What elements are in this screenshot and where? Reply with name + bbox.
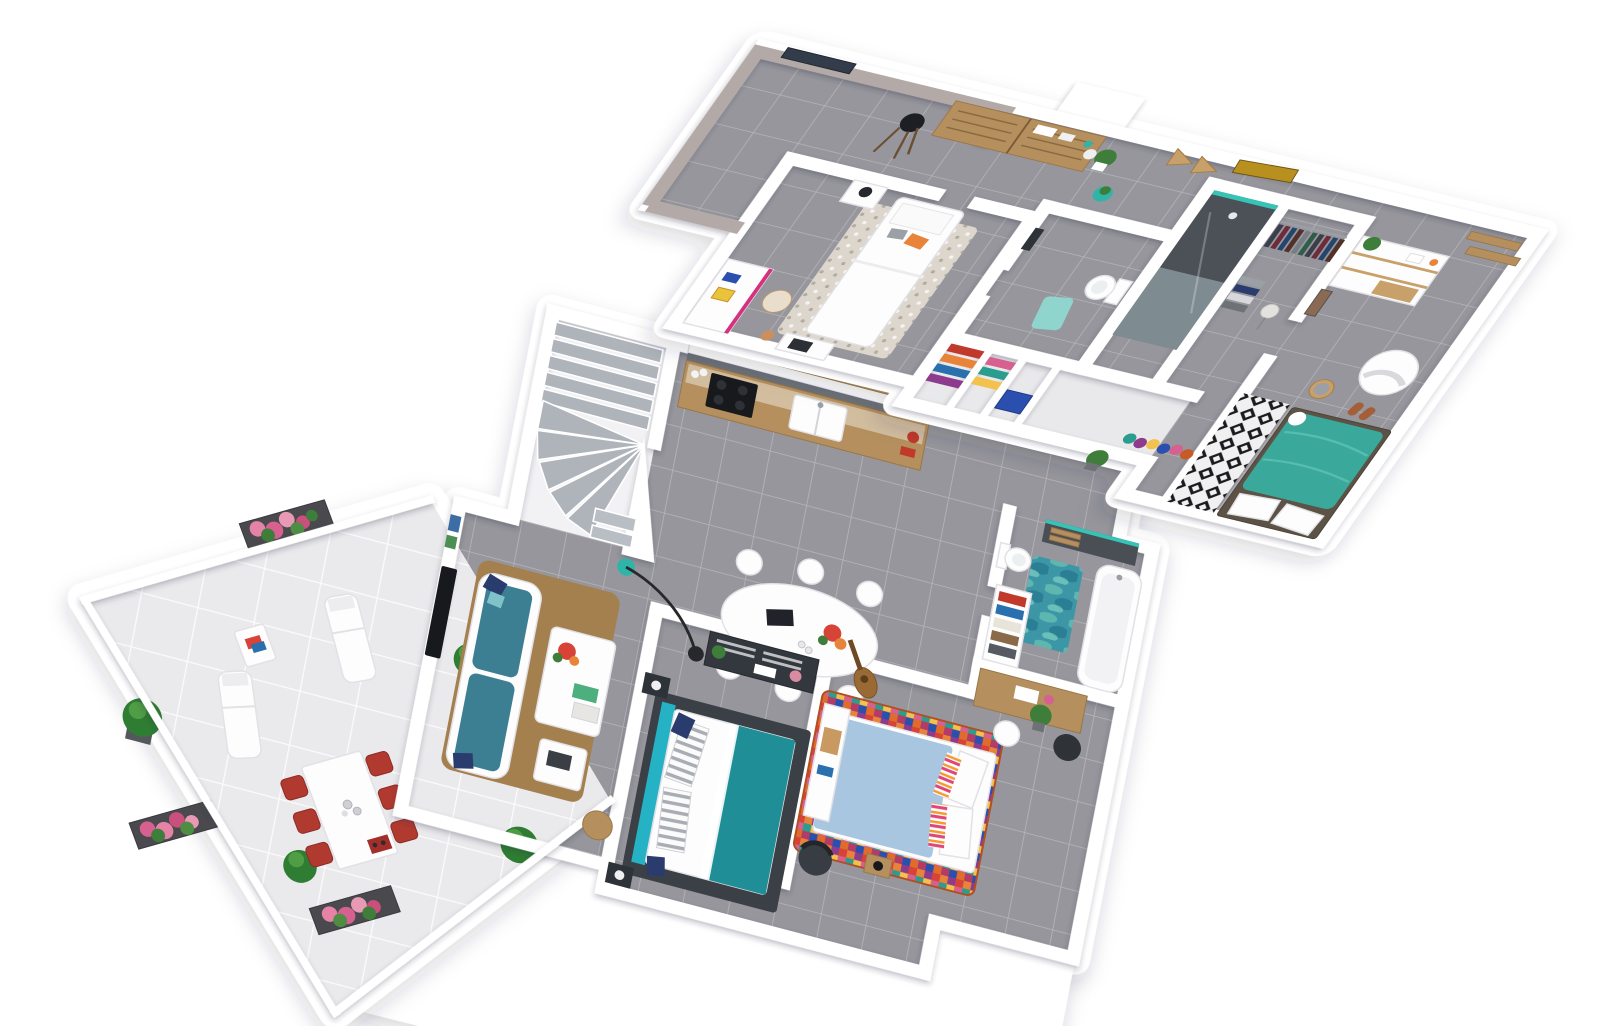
navy-pillow: [453, 753, 474, 769]
navy-pillow: [647, 856, 665, 877]
floor-plan-svg: [0, 0, 1600, 1026]
floor-plan-canvas: [0, 0, 1600, 1026]
laptop: [766, 609, 794, 626]
